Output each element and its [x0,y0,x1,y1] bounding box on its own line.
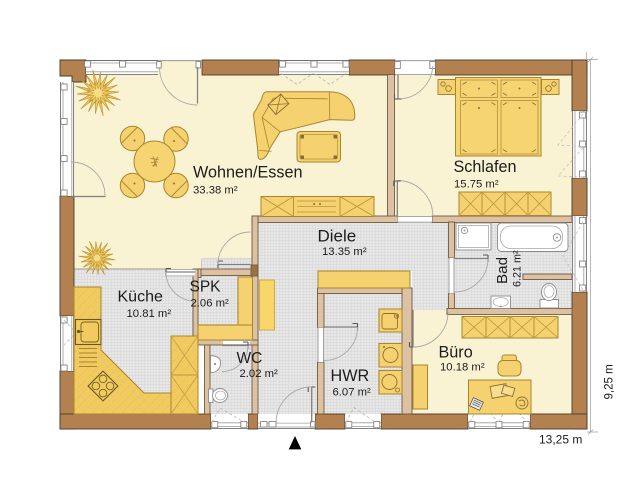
svg-text:6.07 m²: 6.07 m² [333,387,372,399]
svg-text:Bad: Bad [494,257,511,284]
svg-text:SPK: SPK [190,279,222,296]
svg-text:HWR: HWR [331,367,370,385]
svg-text:Küche: Küche [118,289,163,306]
svg-text:Büro: Büro [439,344,473,362]
svg-text:15.75 m²: 15.75 m² [454,179,499,191]
svg-text:Wohnen/Essen: Wohnen/Essen [193,164,303,182]
svg-text:13.35 m²: 13.35 m² [322,246,367,258]
svg-text:6.21 m²: 6.21 m² [512,250,524,287]
svg-text:10.81 m²: 10.81 m² [127,308,172,320]
svg-text:WC: WC [237,350,263,367]
svg-text:13,25 m: 13,25 m [539,433,582,447]
svg-text:Diele: Diele [318,227,357,246]
svg-text:2.06 m²: 2.06 m² [191,298,230,310]
svg-text:Schlafen: Schlafen [454,158,517,176]
svg-text:2.02 m²: 2.02 m² [240,368,279,380]
svg-text:33.38 m²: 33.38 m² [193,185,238,197]
svg-text:10.18 m²: 10.18 m² [440,362,485,374]
svg-text:9,25 m: 9,25 m [604,364,616,399]
